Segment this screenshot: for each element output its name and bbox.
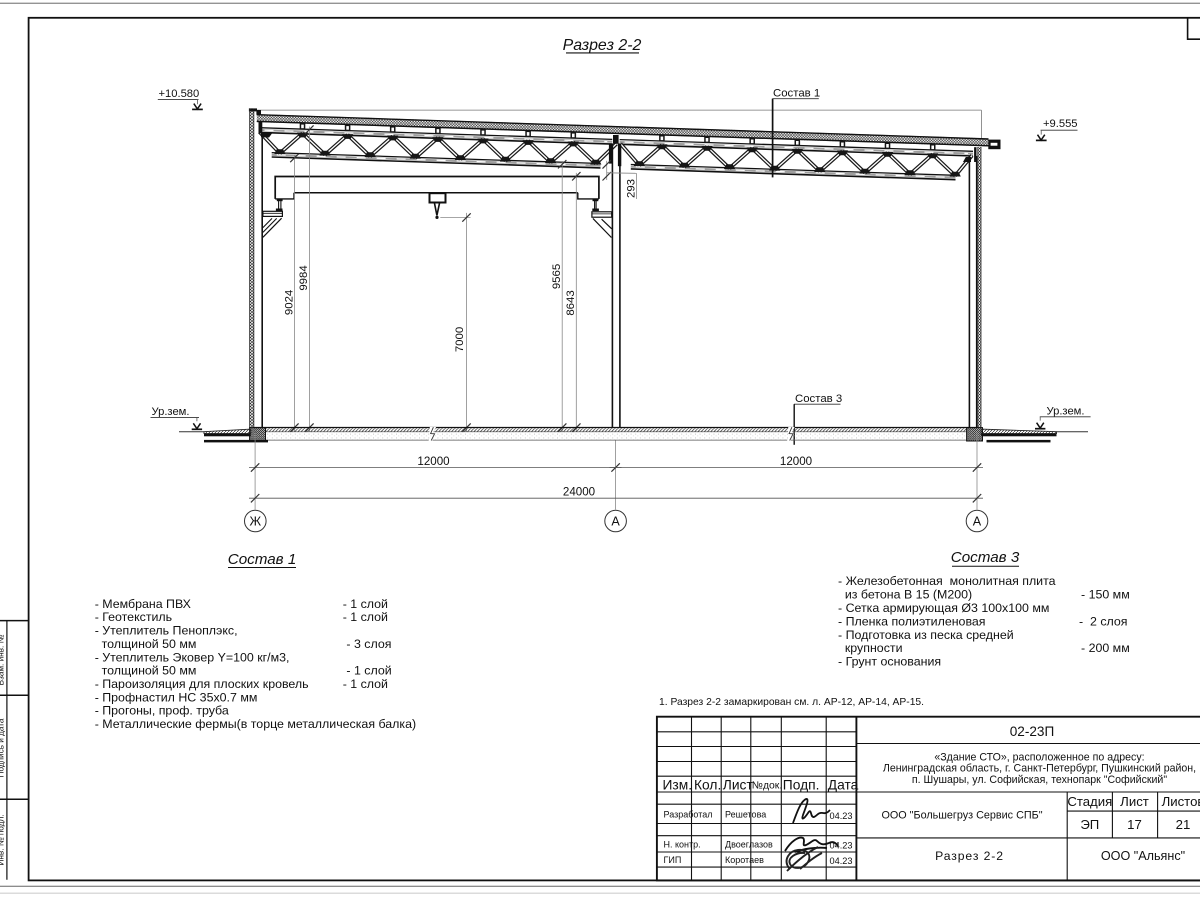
svg-text:- 2 слоя: - 2 слоя	[1079, 614, 1128, 628]
svg-text:Состав 3: Состав 3	[951, 549, 1020, 566]
svg-text:- 150 мм: - 150 мм	[1081, 588, 1130, 602]
svg-text:- Подготовка из песка средней: - Подготовка из песка средней	[838, 628, 1014, 642]
svg-text:9984: 9984	[298, 265, 310, 290]
svg-text:Решетова: Решетова	[725, 810, 766, 820]
svg-text:из бетона В 15 (М200): из бетона В 15 (М200)	[838, 588, 972, 602]
svg-text:- Металлические фермы(в торце: - Металлические фермы(в торце металличес…	[95, 717, 416, 731]
svg-text:- Железобетонная монолитная п: - Железобетонная монолитная плита	[838, 574, 1056, 588]
svg-text:Н. контр.: Н. контр.	[664, 839, 701, 849]
svg-text:- 1 слой: - 1 слой	[346, 664, 391, 678]
svg-text:+9.555: +9.555	[1043, 118, 1078, 130]
svg-text:- Пленка полиэтиленовая: - Пленка полиэтиленовая	[838, 614, 986, 628]
svg-text:Состав 1: Состав 1	[773, 87, 820, 99]
svg-text:толщиной 50 мм: толщиной 50 мм	[95, 664, 197, 678]
svg-text:А: А	[973, 515, 982, 529]
svg-text:02-23П: 02-23П	[1010, 724, 1055, 739]
svg-text:Инв. № подл.: Инв. № подл.	[0, 815, 6, 866]
svg-text:8643: 8643	[565, 290, 577, 315]
svg-text:- 200 мм: - 200 мм	[1081, 641, 1130, 655]
svg-text:п. Шушары, ул. Софийская, техн: п. Шушары, ул. Софийская, технопарк "Соф…	[912, 774, 1167, 786]
svg-text:293: 293	[625, 179, 637, 198]
svg-text:- Геотекстиль: - Геотекстиль	[95, 610, 172, 624]
svg-text:24000: 24000	[563, 486, 595, 499]
svg-text:Коротаев: Коротаев	[725, 855, 764, 865]
svg-text:Изм.: Изм.	[663, 777, 693, 792]
svg-text:- Профнастил НС 35x0.7 мм: - Профнастил НС 35x0.7 мм	[95, 690, 258, 704]
svg-text:Разрез 2-2: Разрез 2-2	[563, 37, 642, 54]
svg-text:- 1 слой: - 1 слой	[343, 597, 388, 611]
svg-text:- Утеплитель Эковер Y=100 кг/м: - Утеплитель Эковер Y=100 кг/м3,	[95, 650, 290, 664]
svg-text:9024: 9024	[283, 290, 295, 315]
svg-text:Кол.: Кол.	[694, 777, 721, 792]
svg-text:Ленинградская область, г. Санк: Ленинградская область, г. Санкт-Петербур…	[883, 763, 1196, 775]
svg-text:1. Разрез 2-2 замаркирован см.: 1. Разрез 2-2 замаркирован см. л. АР-12,…	[659, 697, 924, 708]
svg-text:Лист: Лист	[723, 777, 754, 792]
svg-text:крупности: крупности	[838, 641, 903, 655]
svg-text:ЭП: ЭП	[1080, 817, 1099, 832]
svg-text:Взам. инв. №: Взам. инв. №	[0, 634, 6, 685]
svg-text:А: А	[611, 515, 620, 529]
svg-text:21: 21	[1176, 817, 1191, 832]
svg-text:Листов: Листов	[1162, 794, 1200, 809]
svg-text:ГИП: ГИП	[664, 855, 682, 865]
svg-text:9565: 9565	[551, 264, 563, 289]
svg-text:Дата: Дата	[828, 777, 859, 792]
svg-text:- 3 слоя: - 3 слоя	[346, 637, 391, 651]
svg-text:№док.: №док.	[752, 781, 782, 792]
svg-text:Стадия: Стадия	[1067, 794, 1112, 809]
svg-text:Подпись и дата: Подпись и дата	[0, 718, 6, 777]
svg-text:Разработал: Разработал	[664, 810, 713, 820]
svg-text:ООО "Большегруз Сервис СПБ": ООО "Большегруз Сервис СПБ"	[881, 810, 1042, 822]
svg-text:- 1 слой: - 1 слой	[343, 677, 388, 691]
svg-text:Ур.зем.: Ур.зем.	[152, 406, 190, 418]
svg-text:- Сетка армирующая Ø3 100x100: - Сетка армирующая Ø3 100x100 мм	[838, 601, 1049, 615]
svg-text:12000: 12000	[417, 455, 449, 468]
svg-text:17: 17	[1127, 817, 1142, 832]
svg-text:- Пароизоляция для плоских кро: - Пароизоляция для плоских кровель	[95, 677, 309, 691]
svg-text:+10.580: +10.580	[159, 88, 200, 100]
svg-text:- Мембрана ПВХ: - Мембрана ПВХ	[95, 597, 191, 611]
svg-text:Ж: Ж	[249, 515, 261, 529]
svg-text:Состав 3: Состав 3	[795, 393, 842, 405]
svg-text:04.23: 04.23	[830, 811, 853, 821]
svg-text:Двоеглазов: Двоеглазов	[725, 839, 773, 849]
svg-text:Разрез 2-2: Разрез 2-2	[935, 849, 1004, 863]
svg-text:12000: 12000	[780, 455, 812, 468]
svg-text:- Грунт основания: - Грунт основания	[838, 655, 941, 669]
svg-text:Состав 1: Состав 1	[228, 551, 297, 568]
svg-text:Подп.: Подп.	[783, 777, 820, 792]
svg-text:7000: 7000	[454, 327, 466, 352]
svg-text:04.23: 04.23	[830, 856, 853, 866]
svg-text:- Утеплитель Пеноплэкс,: - Утеплитель Пеноплэкс,	[95, 624, 238, 638]
svg-text:ООО "Альянс": ООО "Альянс"	[1101, 849, 1185, 863]
svg-text:- Прогоны, проф. труба: - Прогоны, проф. труба	[95, 704, 229, 718]
svg-text:Лист: Лист	[1120, 794, 1149, 809]
svg-text:толщиной 50 мм: толщиной 50 мм	[95, 637, 197, 651]
svg-text:- 1 слой: - 1 слой	[343, 610, 388, 624]
svg-text:Ур.зем.: Ур.зем.	[1047, 405, 1085, 417]
